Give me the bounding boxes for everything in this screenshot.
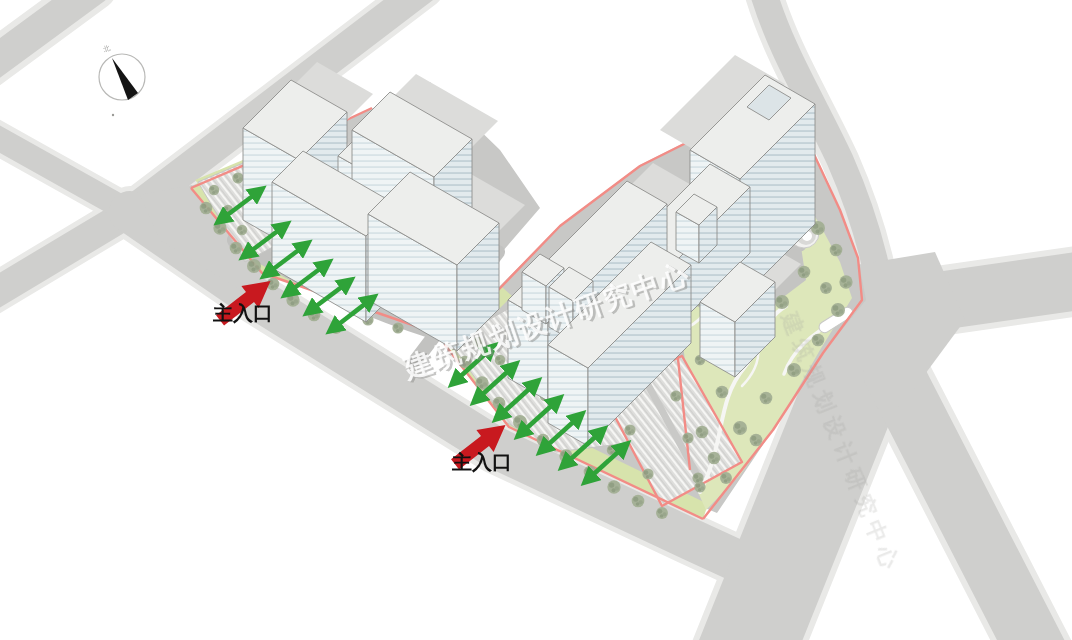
tree (692, 472, 703, 483)
tree (624, 424, 635, 435)
tree (720, 472, 732, 484)
compass-dot (112, 114, 114, 116)
compass-north-label: 北 (102, 44, 111, 54)
tree (682, 432, 693, 443)
tree (750, 434, 763, 447)
site-plan-canvas: 主入口 主入口 北 建筑规划设计研究中心 建筑规划设计研究中心 建筑规划设计研究… (0, 0, 1072, 640)
road-southeast-branch (893, 372, 1042, 640)
tree (209, 185, 220, 196)
tree (696, 426, 709, 439)
road-west-branch (0, 128, 130, 212)
main-entrance-label: 主入口 (212, 302, 273, 324)
tree (392, 322, 403, 333)
tree (200, 202, 213, 215)
tree (642, 468, 653, 479)
tree (493, 397, 506, 410)
tree (820, 282, 832, 294)
tree (839, 275, 852, 288)
tree (247, 259, 261, 273)
main-entrance-label: 主入口 (451, 451, 512, 473)
tree (798, 266, 811, 279)
north-arrow: 北 (99, 44, 145, 116)
tree (232, 172, 243, 183)
tree (830, 244, 843, 257)
tree (708, 452, 721, 465)
tree (607, 480, 620, 493)
tree (775, 295, 789, 309)
tree (230, 242, 243, 255)
tree (733, 421, 747, 435)
tree (632, 495, 645, 508)
tree (716, 386, 729, 399)
tree (670, 390, 681, 401)
tree (656, 507, 668, 519)
master-plan-drawing: 主入口 主入口 北 建筑规划设计研究中心 建筑规划设计研究中心 建筑规划设计研究… (0, 0, 1072, 640)
tree (237, 225, 248, 236)
tree (831, 303, 845, 317)
tree (760, 392, 773, 405)
